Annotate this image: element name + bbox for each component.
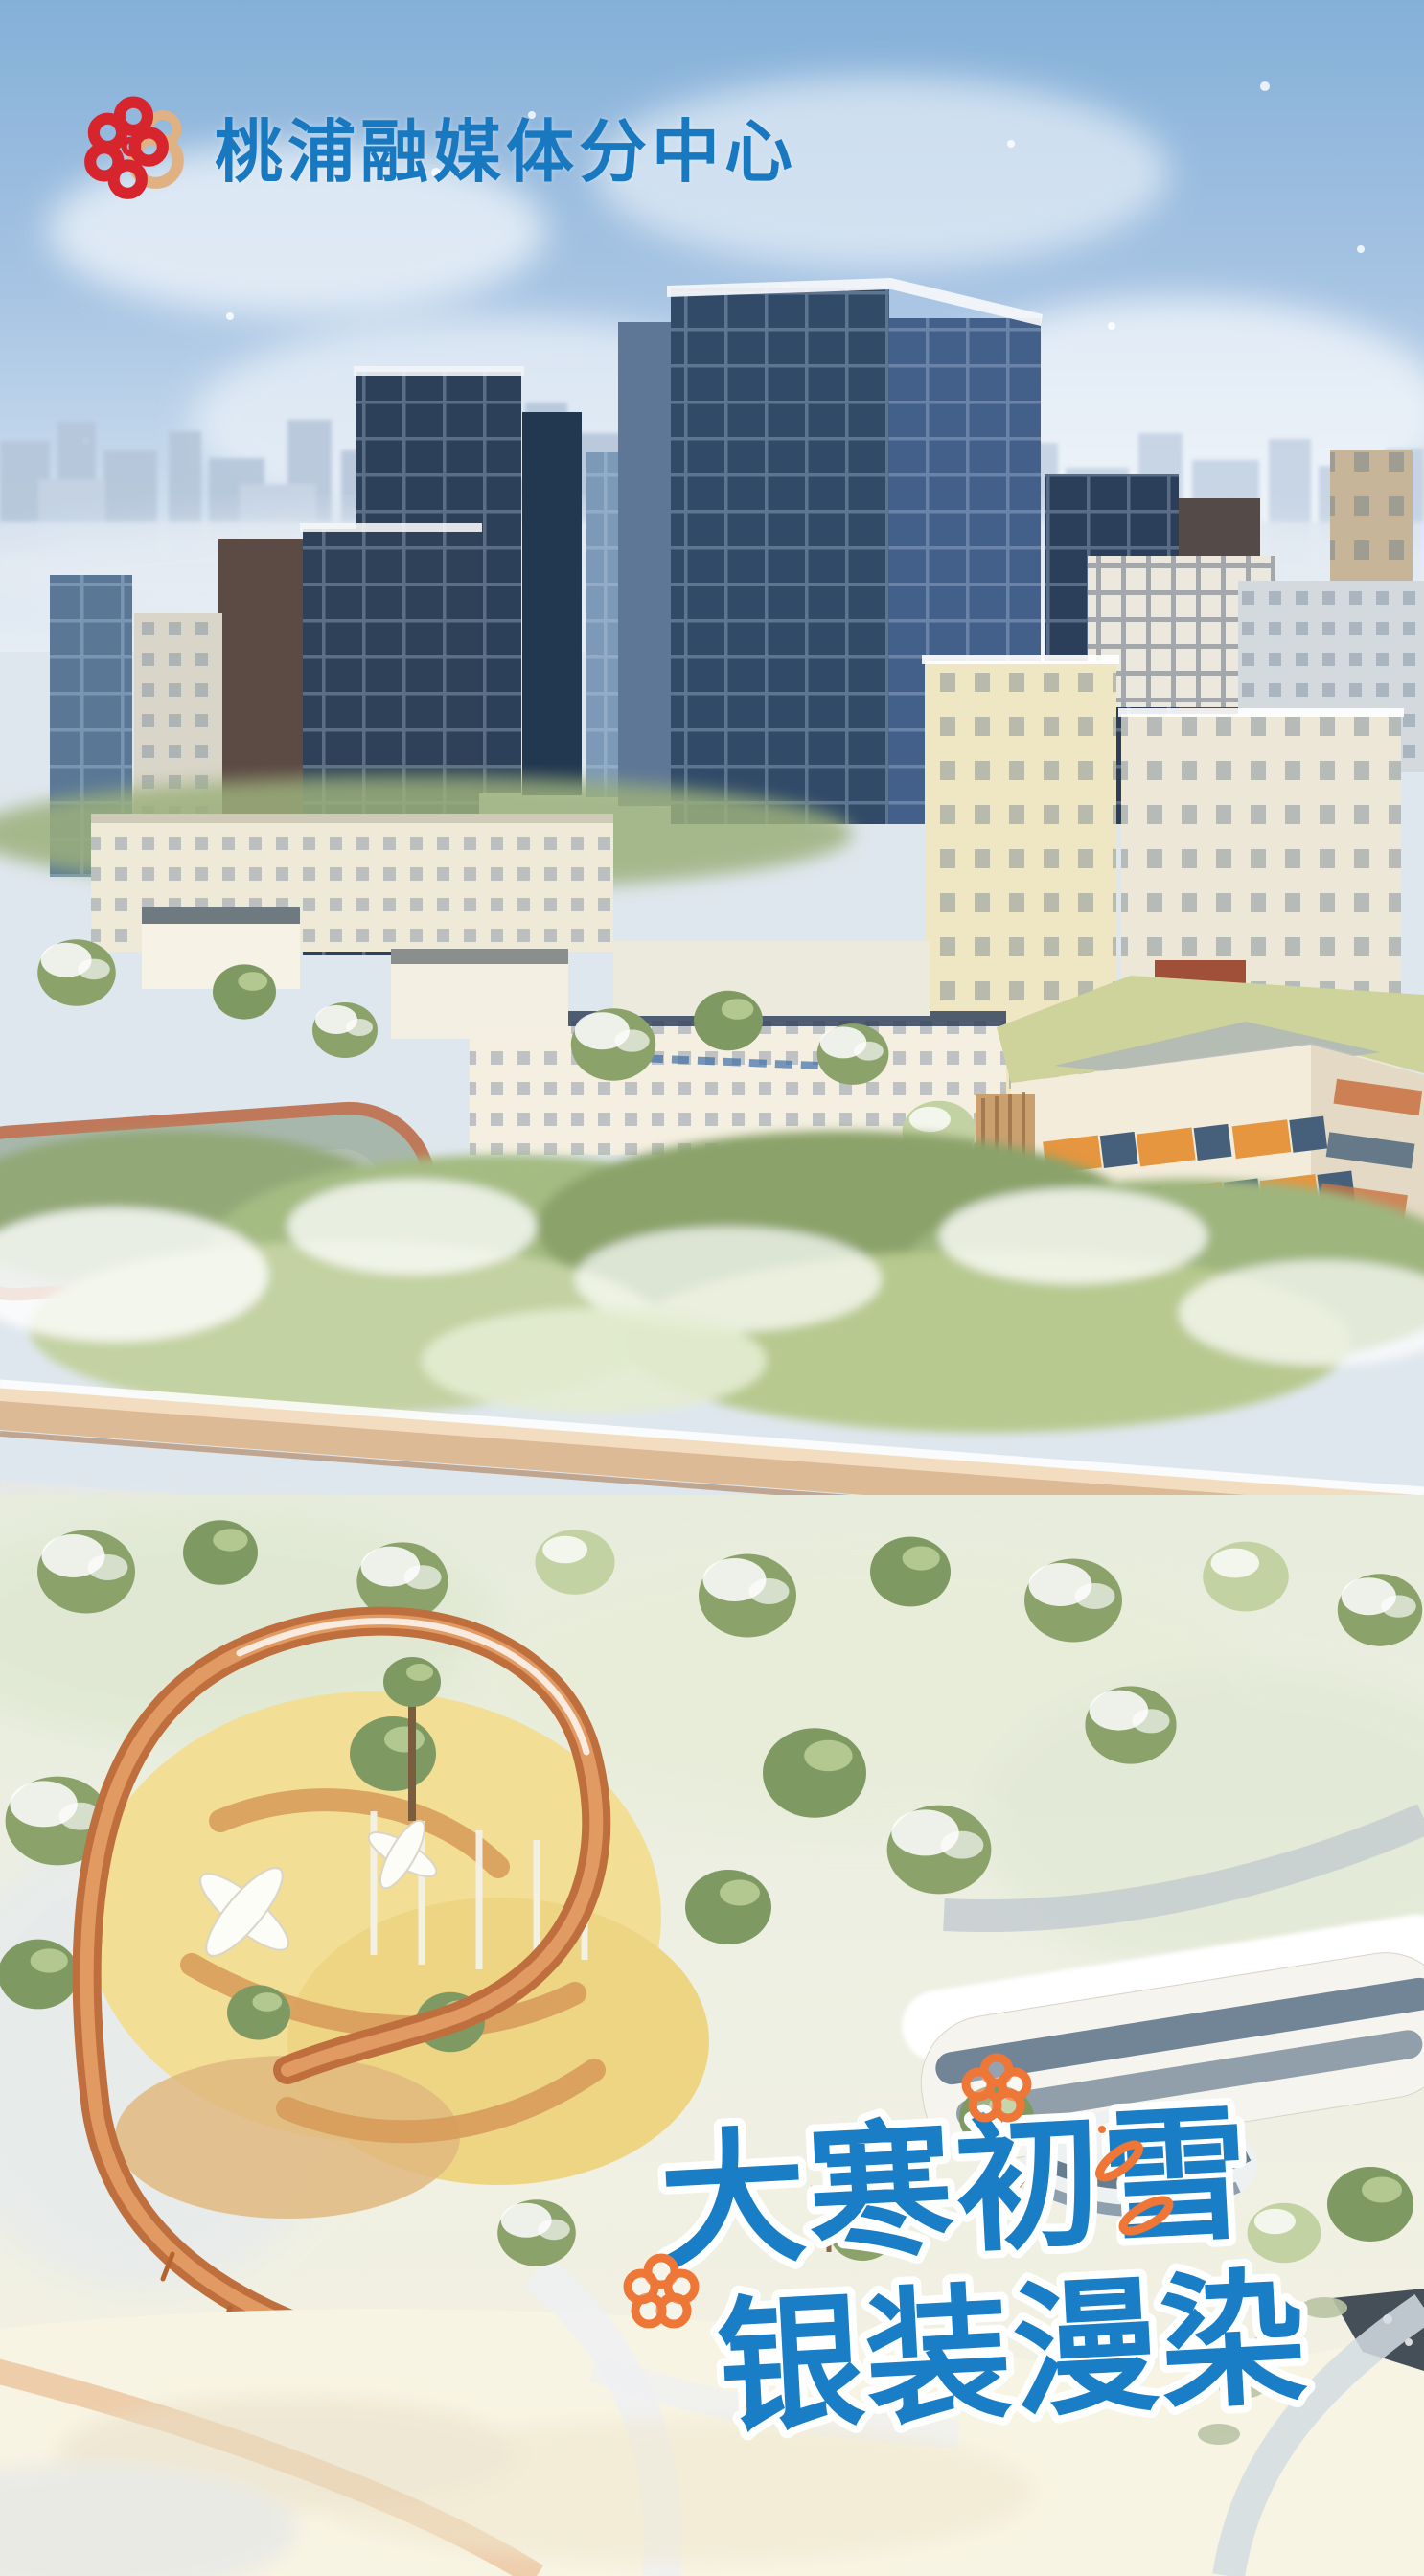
winter-city-poster: 大寒初雪 银装漫染 <box>0 0 1424 2576</box>
watercolor-cityscape: 大寒初雪 银装漫染 <box>0 0 1424 2576</box>
brand-header: 桃浦融媒体分中心 <box>79 88 797 205</box>
poster-title: 大寒初雪 银装漫染 <box>656 2088 1312 2453</box>
peach-blossom-logo-icon <box>79 88 195 205</box>
title-line-1: 大寒初雪 <box>656 2088 1254 2288</box>
title-line-2: 银装漫染 <box>714 2253 1312 2453</box>
brand-name: 桃浦融媒体分中心 <box>215 98 797 195</box>
